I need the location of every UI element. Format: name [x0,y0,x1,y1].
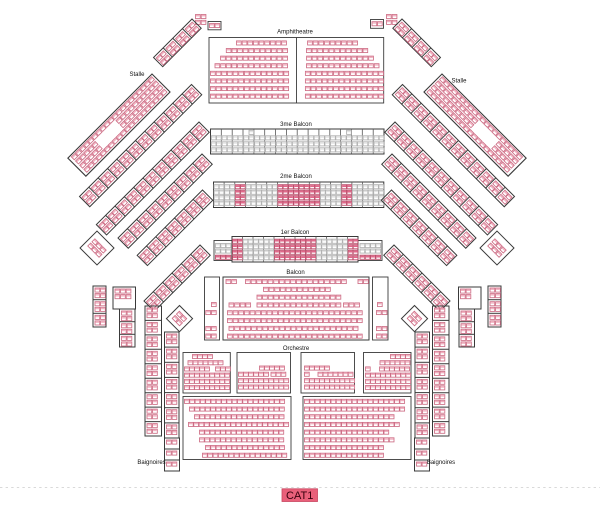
svg-text:Balcon: Balcon [286,270,304,276]
svg-text:Stalle: Stalle [451,79,467,85]
svg-text:2me Balcon: 2me Balcon [280,174,312,180]
svg-text:CAT1: CAT1 [286,490,313,502]
svg-text:Stalle: Stalle [129,72,145,78]
svg-text:Baignoires: Baignoires [427,460,455,466]
svg-text:Baignoires: Baignoires [137,460,165,466]
svg-text:Amphitheatre: Amphitheatre [277,30,313,36]
svg-text:3me Balcon: 3me Balcon [280,122,312,128]
svg-text:1er Balcon: 1er Balcon [281,230,310,236]
svg-text:Orchestre: Orchestre [283,346,310,352]
